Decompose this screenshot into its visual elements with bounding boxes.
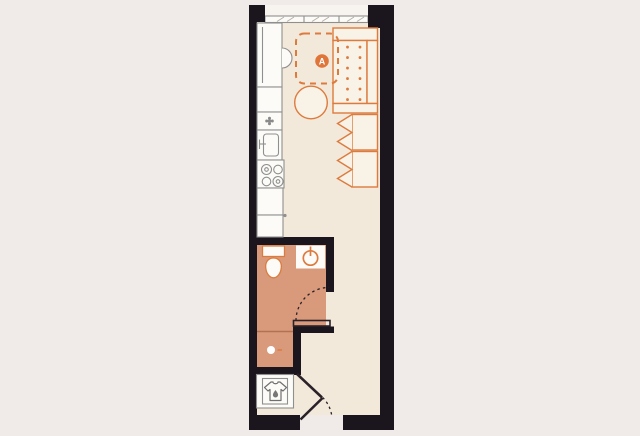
bed-footboard [333,104,378,114]
bed-side-rail [367,41,378,104]
toilet-bowl [266,258,282,278]
floor-plan-svg: A [0,0,640,436]
wall-bathroom-right [326,245,334,292]
bed [333,28,378,113]
wall-bathroom-sill [293,327,334,334]
fridge [257,23,282,87]
floor-plan-canvas: A [0,0,640,436]
round-table [295,86,328,119]
toilet-tank [263,246,285,257]
pier-top-right [368,5,394,28]
kitchen-cabinet [257,87,282,112]
laundry-closet [257,375,294,409]
window [265,16,368,23]
wall-right [380,5,394,430]
wall-bathroom-bottom [249,367,301,375]
bed-headboard [333,28,378,41]
wall-bottom-left [249,415,300,430]
wall-bathroom-top [249,237,334,245]
window-exterior-strip [265,5,368,17]
wall-bathroom-lower [293,333,301,367]
wall-left [249,5,257,430]
kitchen-sink-basin [264,134,279,156]
zone-marker-label: A [319,56,326,66]
zone-marker-badge: A [315,54,329,68]
pier-top-left [249,5,265,22]
counter-joint-dot [283,214,286,217]
shower-floor [257,327,293,367]
wall-bottom-right [343,415,394,430]
kitchen-counter [257,215,283,237]
kitchen-counter [257,188,283,215]
